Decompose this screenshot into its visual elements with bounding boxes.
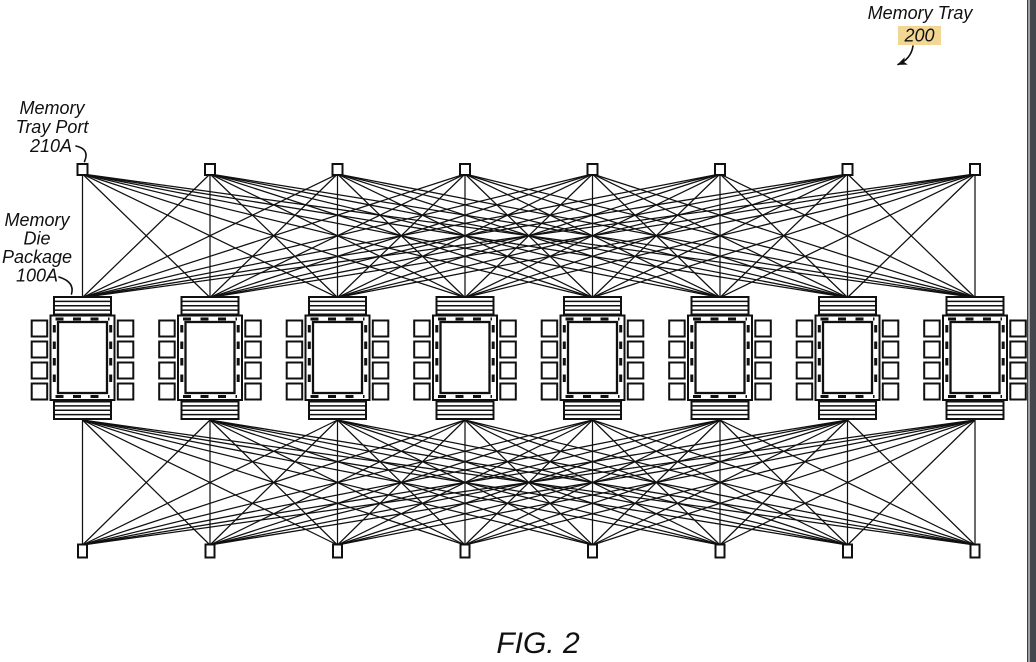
memory-die-package-ref: 100A (16, 266, 58, 286)
package-pad-left (414, 342, 430, 358)
package-pad-left (32, 363, 48, 379)
package-pad-left (669, 321, 685, 337)
memory-tray-port-bottom-3 (333, 545, 342, 558)
package-pad-right (500, 384, 516, 400)
memory-die-package-3 (287, 297, 389, 419)
memory-die-package-label-line2: Die (23, 229, 50, 249)
package-pad-left (924, 342, 940, 358)
package-pad-left (159, 384, 175, 400)
memory-tray-port-top-3 (333, 164, 343, 175)
package-pad-right (373, 384, 389, 400)
package-pad-right (883, 321, 899, 337)
memory-tray-port-pointer (76, 146, 86, 162)
memory-die-package-6 (669, 297, 771, 419)
memory-die-package-4 (414, 297, 516, 419)
package-pad-right (245, 384, 260, 400)
memory-tray-port-bottom-6 (716, 545, 725, 558)
memory-tray-port-bottom-2 (206, 545, 215, 558)
package-pad-left (542, 321, 558, 337)
memory-tray-port-top-6 (715, 164, 725, 175)
package-pad-left (669, 363, 685, 379)
memory-tray-port-top-5 (588, 164, 598, 175)
package-pad-left (797, 321, 813, 337)
package-pad-left (287, 384, 303, 400)
package-pad-left (542, 384, 558, 400)
memory-tray-pointer-arrow (898, 46, 913, 65)
package-pad-right (1010, 342, 1026, 358)
page-edge-line (1027, 0, 1029, 662)
memory-die (186, 322, 235, 393)
package-pad-right (118, 321, 134, 337)
memory-tray-port-label-line1: Memory (19, 98, 85, 118)
package-pad-left (287, 342, 303, 358)
package-pad-right (118, 384, 134, 400)
package-pad-left (32, 321, 48, 337)
package-pad-right (118, 363, 134, 379)
package-pad-right (245, 342, 260, 358)
package-pad-right (755, 342, 771, 358)
package-pad-right (245, 321, 260, 337)
package-pad-right (883, 384, 899, 400)
package-pad-left (159, 342, 175, 358)
package-pad-left (542, 363, 558, 379)
memory-die (951, 322, 1000, 393)
package-pad-right (245, 363, 260, 379)
memory-die (823, 322, 872, 393)
memory-tray-port-top-2 (205, 164, 215, 175)
memory-die (441, 322, 490, 393)
memory-tray-port-label-line2: Tray Port (16, 117, 90, 137)
package-pad-left (924, 321, 940, 337)
package-pad-left (32, 384, 48, 400)
package-pad-right (373, 363, 389, 379)
package-pad-right (500, 363, 516, 379)
package-pad-right (628, 321, 644, 337)
package-pad-left (669, 342, 685, 358)
package-pad-left (287, 321, 303, 337)
memory-tray-port-top-7 (843, 164, 853, 175)
memory-tray-port-bottom-1 (78, 545, 87, 558)
top-interconnect-mesh (83, 174, 976, 298)
memory-tray-port-top-1 (78, 164, 88, 175)
page-edge-bar (1030, 0, 1036, 662)
package-pad-left (414, 384, 430, 400)
package-pad-right (500, 321, 516, 337)
package-pad-left (797, 363, 813, 379)
memory-tray-ref: 200 (903, 26, 934, 46)
package-pad-left (414, 321, 430, 337)
bottom-interconnect-mesh (83, 420, 976, 545)
memory-die-package-5 (542, 297, 644, 419)
memory-die (58, 322, 107, 393)
package-pad-right (373, 321, 389, 337)
memory-tray-port-top-8 (970, 164, 980, 175)
memory-tray-figure: Memory Tray 200 Memory Tray Port 210A Me… (0, 0, 1036, 662)
patent-figure-page: Memory Tray 200 Memory Tray Port 210A Me… (0, 0, 1036, 662)
figure-caption: FIG. 2 (496, 627, 580, 660)
memory-die-package-1 (32, 297, 134, 419)
package-pad-left (414, 363, 430, 379)
memory-die-package-label-line3: Package (2, 247, 72, 267)
package-pad-left (797, 384, 813, 400)
package-pad-right (755, 363, 771, 379)
package-pad-left (924, 363, 940, 379)
memory-die-package-label-line1: Memory (4, 210, 70, 230)
package-pad-right (755, 321, 771, 337)
memory-die-package-7 (797, 297, 899, 419)
memory-tray-port-bottom-4 (461, 545, 470, 558)
package-pad-right (1010, 321, 1026, 337)
memory-die (696, 322, 745, 393)
package-pad-right (373, 342, 389, 358)
package-pad-right (883, 363, 899, 379)
memory-tray-port-bottom-5 (588, 545, 597, 558)
package-pad-left (159, 321, 175, 337)
memory-tray-label: Memory Tray (868, 3, 974, 23)
memory-tray-port-ref: 210A (29, 136, 72, 156)
package-pad-right (1010, 384, 1026, 400)
package-pad-right (500, 342, 516, 358)
memory-tray-port-bottom-8 (971, 545, 980, 558)
package-pad-right (1010, 363, 1026, 379)
memory-die (568, 322, 617, 393)
memory-die-package-8 (924, 297, 1026, 419)
package-pad-left (542, 342, 558, 358)
memory-tray-port-top-4 (460, 164, 470, 175)
package-pad-right (628, 342, 644, 358)
memory-die (313, 322, 362, 393)
package-pad-left (32, 342, 48, 358)
package-pad-right (883, 342, 899, 358)
package-pad-right (628, 384, 644, 400)
package-pad-left (924, 384, 940, 400)
package-pad-left (287, 363, 303, 379)
package-pad-left (797, 342, 813, 358)
package-pad-left (669, 384, 685, 400)
memory-tray-port-bottom-7 (843, 545, 852, 558)
memory-die-package-2 (159, 297, 261, 419)
package-pad-right (628, 363, 644, 379)
package-pad-left (159, 363, 175, 379)
package-pad-right (118, 342, 134, 358)
memory-die-package-pointer (59, 277, 72, 294)
package-pad-right (755, 384, 771, 400)
diagram-body (32, 164, 1026, 558)
